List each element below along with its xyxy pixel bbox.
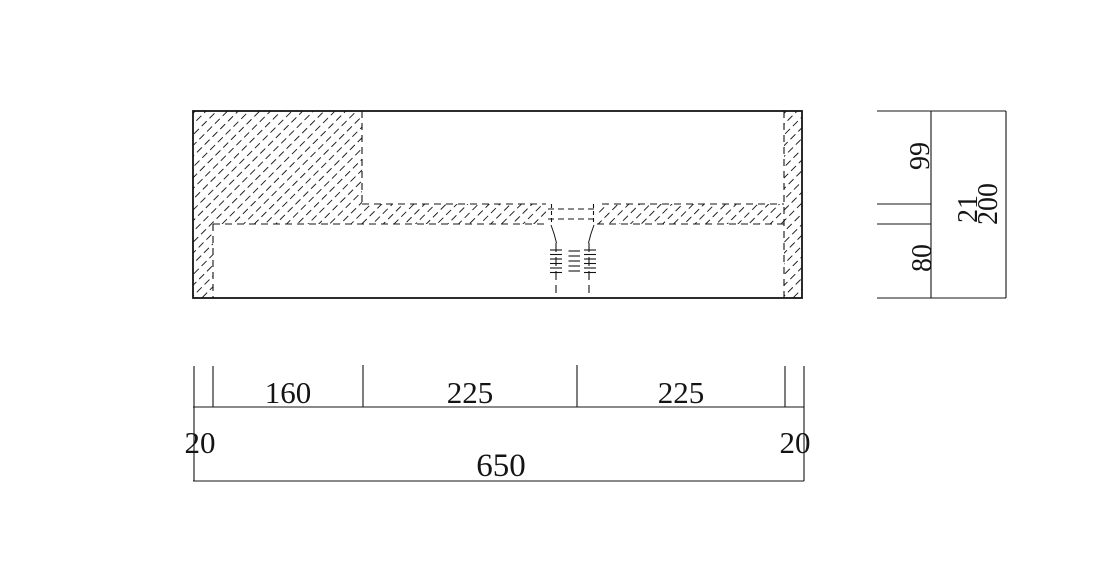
bell-mouth-left: [551, 225, 557, 243]
hatch-left-wall: [193, 224, 213, 298]
hatch-top-left-block: [193, 111, 362, 224]
bottom-dimensions: 20 160 225 225 20 650: [185, 365, 811, 484]
dim-label-160: 160: [265, 375, 312, 410]
dim-label-200-overall: 200: [973, 183, 1004, 225]
dim-label-99: 99: [905, 142, 936, 170]
section-view: [193, 111, 802, 298]
bell-mouth-right: [589, 225, 595, 243]
dim-label-80: 80: [907, 244, 938, 272]
section-drawing-svg: 20 160 225 225 20 650 99 21 200 80: [0, 0, 1112, 568]
hatch-right-wall: [784, 111, 802, 298]
dim-label-20-left: 20: [185, 425, 216, 460]
dim-label-20-right: 20: [780, 425, 811, 460]
engineering-drawing: 20 160 225 225 20 650 99 21 200 80: [0, 0, 1112, 568]
dim-label-650-overall: 650: [476, 448, 526, 484]
right-dimensions: 99 21 200 80: [877, 111, 1006, 298]
dim-label-225-b: 225: [658, 375, 705, 410]
dim-label-225-a: 225: [447, 375, 494, 410]
sleeve-gap-mask: [546, 203, 597, 225]
